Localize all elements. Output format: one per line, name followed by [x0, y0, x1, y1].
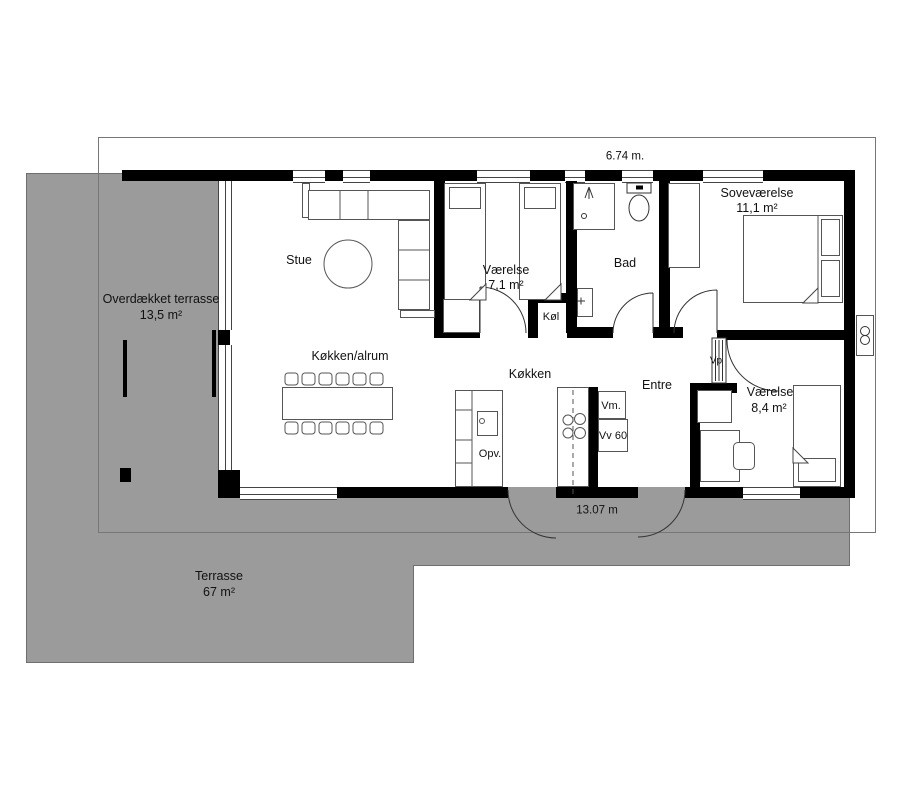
fixture-label-vp: Vp [710, 356, 722, 367]
terrace-screen-west [123, 340, 127, 397]
terrace-screen-east [212, 330, 216, 397]
window-north-5 [622, 170, 653, 183]
room-label-bad: Bad [614, 257, 636, 271]
window-north-3 [477, 170, 530, 183]
wall-hall-north-3 [653, 327, 683, 338]
fixture-label-vm: Vm. [601, 400, 621, 412]
kitchen-sink [477, 411, 498, 436]
sofa-foot [400, 310, 435, 318]
wall-east [844, 170, 855, 498]
wall-kitchen-island [589, 387, 598, 487]
washbasin [577, 288, 593, 317]
wall-north [585, 170, 622, 181]
kitchen-island [557, 387, 589, 487]
wall-north [653, 170, 703, 181]
heat-pump-outdoor-unit [856, 315, 874, 356]
room-label-sovevaerelse: Soveværelse [721, 187, 794, 201]
room-label-koekken: Køkken [509, 368, 551, 382]
dining-table [282, 387, 393, 420]
sofa-right [398, 220, 430, 310]
area-size-terrasse: 67 m² [203, 586, 235, 600]
pillow-sovevaerelse-2 [821, 260, 840, 297]
room-area-vaerelse84: 8,4 m² [751, 402, 786, 416]
room-area-sovevaerelse: 11,1 m² [736, 202, 777, 216]
wardrobe-sovevaerelse [668, 183, 700, 268]
wardrobe-vaerelse84 [697, 390, 732, 423]
room-label-entre: Entre [642, 379, 672, 393]
sofa-top [308, 190, 430, 220]
window-west-1 [218, 181, 232, 330]
window-west-2 [218, 345, 232, 470]
window-north-1 [293, 170, 325, 183]
terrace-door-opening-1 [508, 487, 556, 498]
window-south-2 [743, 487, 800, 500]
shower [573, 183, 615, 230]
terrace-roof-post [120, 468, 131, 482]
pillow-vaerelse84 [798, 458, 836, 482]
wall-north [122, 170, 293, 181]
pillow-sovevaerelse-1 [821, 219, 840, 256]
wall-north [530, 170, 565, 181]
area-size-overdaekket-terrasse: 13,5 m² [140, 309, 182, 323]
window-north-6 [703, 170, 763, 183]
wall-north [370, 170, 477, 181]
wall-sovevaerelse-south [717, 330, 845, 340]
terrace-door-opening-2 [638, 487, 685, 498]
dimension-bottom: 13.07 m [576, 505, 618, 518]
room-label-stue: Stue [286, 254, 312, 268]
chair-vaerelse84 [733, 442, 755, 470]
wall-north [325, 170, 343, 181]
room-label-koekken-alrum: Køkken/alrum [311, 350, 388, 364]
room-area-vaerelse71: 7,1 m² [488, 279, 523, 293]
dimension-top: 6.74 m. [606, 151, 644, 164]
dresser-vaerelse71 [443, 299, 480, 333]
wall-hall-north-2 [567, 327, 613, 338]
area-label-overdaekket-terrasse: Overdækket terrasse [103, 293, 220, 307]
kitchen-counter [455, 390, 503, 487]
room-label-koel: Køl [543, 311, 560, 323]
wall-west-mullion [218, 330, 230, 345]
room-label-vaerelse71: Værelse [483, 264, 530, 278]
fixture-label-vv60: Vv 60 [599, 430, 627, 442]
window-north-2 [343, 170, 370, 183]
wall-south [556, 487, 638, 498]
area-label-terrasse: Terrasse [195, 570, 243, 584]
wall-north [763, 170, 855, 181]
window-south-1 [240, 487, 337, 500]
pillow-vaerelse71-b [524, 187, 556, 209]
floor-plan: Stue Køkken/alrum Køkken Entre Bad Køl V… [0, 0, 900, 800]
fixture-label-opv: Opv. [479, 448, 501, 460]
room-label-vaerelse84: Værelse [747, 386, 794, 400]
pillow-vaerelse71-a [449, 187, 481, 209]
wall-south [337, 487, 508, 498]
wall-west-corner [218, 470, 240, 498]
